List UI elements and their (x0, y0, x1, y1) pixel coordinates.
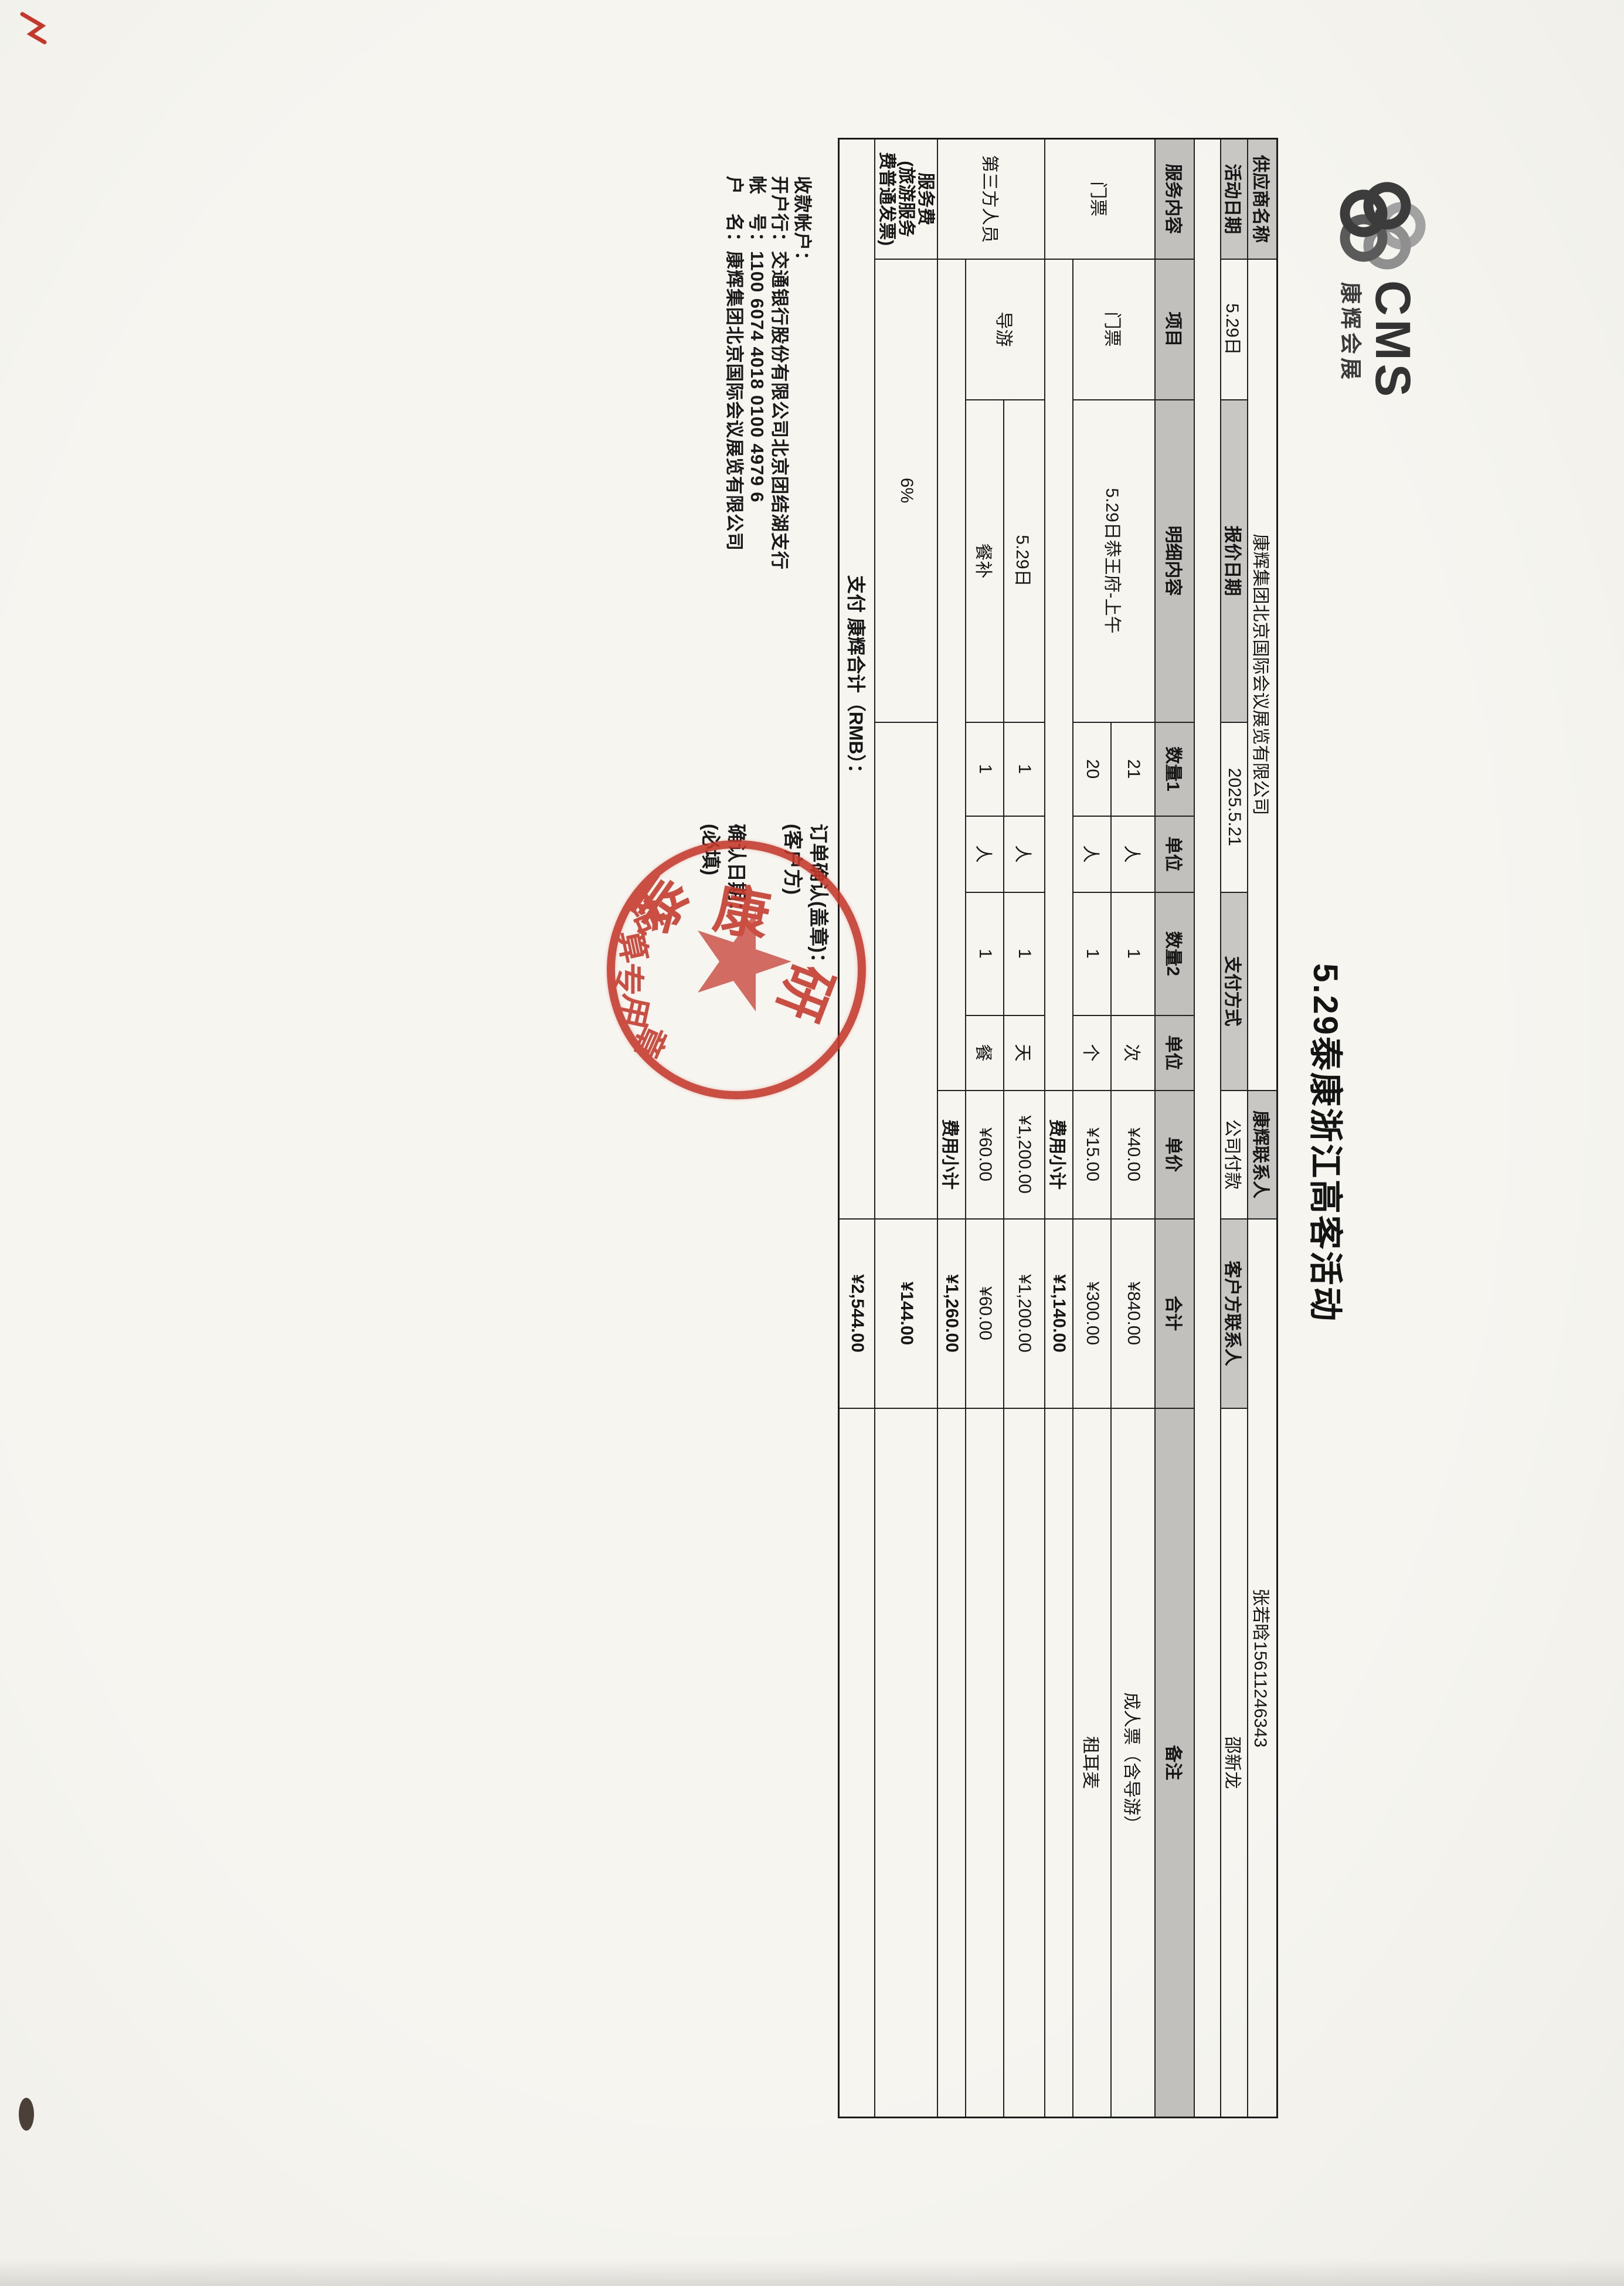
client-contact-value-cell: 邵新龙 (1221, 1408, 1248, 2118)
subtotal-amount-cell: ¥1,140.00 (1045, 1219, 1073, 1408)
subtotal-label-cell: 费用小计 (1045, 1091, 1073, 1219)
col-header: 合计 (1156, 1219, 1195, 1408)
amount-cell: ¥60.00 (966, 1219, 1004, 1408)
scanned-page: CMS 康辉会展 5.29泰康浙江高客活动 供应商名称 康辉集团北京国际会议展览… (0, 0, 1624, 2286)
col-header: 备注 (1156, 1408, 1195, 2118)
col-header: 单位 (1156, 1015, 1195, 1091)
detail-cell: 餐补 (966, 400, 1004, 722)
unit2-cell: 天 (1004, 1015, 1045, 1091)
spacer-row (1195, 139, 1221, 2118)
empty-note-cell (938, 1408, 966, 2118)
note-cell: 租耳麦 (1073, 1408, 1112, 2118)
col-header: 明细内容 (1156, 400, 1195, 722)
qty1-cell: 1 (1004, 722, 1045, 816)
item-cell: 导游 (966, 259, 1045, 400)
table-row-grand-total: 支付 康辉合计（RMB）： ¥2,544.00 (839, 139, 875, 2118)
subtotal-label-cell: 费用小计 (938, 1091, 966, 1219)
qty1-cell: 20 (1073, 722, 1112, 816)
service-fee-line3: 费普通发票) (878, 152, 897, 246)
stamp-bottom-char: 专 (606, 963, 654, 996)
scan-smudge (19, 2098, 34, 2131)
unit2-cell: 餐 (966, 1015, 1004, 1091)
table-row-subtotal2: 费用小计 ¥1,260.00 (938, 139, 966, 2118)
bank-account-block: 收款帐户： 开户行：交通银行股份有限公司北京团结湖支行 帐 号：1100 607… (723, 176, 813, 570)
service-fee-rate-cell: 6% (875, 259, 938, 722)
qty1-cell: 1 (966, 722, 1004, 816)
qty1-cell: 21 (1112, 722, 1156, 816)
pay-method-label-cell: 支付方式 (1221, 892, 1248, 1091)
col-header: 单价 (1156, 1091, 1195, 1219)
doc-title: 5.29泰康浙江高客活动 (1304, 0, 1353, 2286)
quote-date-value-cell: 2025.5.21 (1221, 722, 1248, 892)
group-cell: 门票 (1045, 139, 1156, 259)
table-row-guide: 第三方人员 导游 5.29日 1 人 1 天 ¥1,200.00 ¥1,200.… (1004, 139, 1045, 2118)
event-date-label-cell: 活动日期 (1221, 139, 1248, 259)
table-row-ticket1: 门票 门票 5.29日恭王府-上午 21 人 1 次 ¥40.00 ¥840.0… (1112, 139, 1156, 2118)
red-pen-mark (19, 11, 48, 46)
qty2-cell: 1 (1004, 892, 1045, 1015)
table-row-service-fee: 服务费 (旅游服务 费普通发票) 6% ¥144.00 (875, 139, 938, 2118)
info-row-supplier: 供应商名称 康辉集团北京国际会议展览有限公司 康辉联系人 张若晗15611246… (1248, 139, 1278, 2118)
spacer-cell (1195, 139, 1221, 2118)
event-date-value-cell: 5.29日 (1221, 259, 1248, 400)
detail-cell: 5.29日 (1004, 400, 1045, 722)
unit1-cell: 人 (1004, 816, 1045, 892)
empty-note-cell (966, 1408, 1004, 2118)
empty-note-cell (1004, 1408, 1045, 2118)
unit2-cell: 个 (1073, 1015, 1112, 1091)
detail-cell: 5.29日恭王府-上午 (1073, 400, 1156, 722)
subtotal-spacer-cell (1045, 259, 1073, 1091)
table-header-row: 服务内容 项目 明细内容 数量1 单位 数量2 单位 单价 合计 备注 (1156, 139, 1195, 2118)
bank-line-branch: 开户行：交通银行股份有限公司北京团结湖支行 (768, 176, 791, 570)
empty-note-cell (875, 1408, 938, 2118)
empty-note-cell (839, 1408, 875, 2118)
supplier-value-cell: 康辉集团北京国际会议展览有限公司 (1248, 259, 1278, 1091)
bank-line-name: 户 名：康辉集团北京国际会议展览有限公司 (723, 176, 746, 570)
empty-note-cell (1045, 1408, 1073, 2118)
document: CMS 康辉会展 5.29泰康浙江高客活动 供应商名称 康辉集团北京国际会议展览… (0, 0, 1624, 2286)
service-fee-spacer-cell (875, 722, 938, 1219)
supplier-label-cell: 供应商名称 (1248, 139, 1278, 259)
item-cell: 门票 (1073, 259, 1156, 400)
qty2-cell: 1 (966, 892, 1004, 1015)
note-cell: 成人票（含导游） (1112, 1408, 1156, 2118)
bank-line-account: 收款帐户： (791, 176, 814, 570)
service-fee-amount-cell: ¥144.00 (875, 1219, 938, 1408)
unit1-cell: 人 (1073, 816, 1112, 892)
group-cell: 第三方人员 (938, 139, 1045, 259)
service-fee-line2: (旅游服务 (897, 161, 916, 237)
unit1-cell: 人 (966, 816, 1004, 892)
unit1-cell: 人 (1112, 816, 1156, 892)
col-header: 服务内容 (1156, 139, 1195, 259)
qty2-cell: 1 (1073, 892, 1112, 1015)
price-cell: ¥1,200.00 (1004, 1091, 1045, 1219)
bank-line-number: 帐 号：1100 6074 4018 0100 4979 6 (746, 176, 769, 570)
grand-total-amount-cell: ¥2,544.00 (839, 1219, 875, 1408)
amount-cell: ¥1,200.00 (1004, 1219, 1045, 1408)
pay-method-value-cell: 公司付款 (1221, 1091, 1248, 1219)
amount-cell: ¥300.00 (1073, 1219, 1112, 1408)
amount-cell: ¥840.00 (1112, 1219, 1156, 1408)
kh-contact-value-cell: 张若晗15611246343 (1248, 1219, 1278, 2118)
col-header: 单位 (1156, 816, 1195, 892)
table-row-meal: 餐补 1 人 1 餐 ¥60.00 ¥60.00 (966, 139, 1004, 2118)
service-fee-line1: 服务费 (916, 172, 936, 225)
subtotal-spacer-cell (938, 259, 966, 1091)
quotation-table: 供应商名称 康辉集团北京国际会议展览有限公司 康辉联系人 张若晗15611246… (838, 138, 1278, 2118)
client-contact-label-cell: 客户方联系人 (1221, 1219, 1248, 1408)
price-cell: ¥60.00 (966, 1091, 1004, 1219)
col-header: 项目 (1156, 259, 1195, 400)
quote-date-label-cell: 报价日期 (1221, 400, 1248, 722)
kh-contact-label-cell: 康辉联系人 (1248, 1091, 1278, 1219)
qty2-cell: 1 (1112, 892, 1156, 1015)
service-fee-label-cell: 服务费 (旅游服务 费普通发票) (875, 139, 938, 259)
brand-cms-text: CMS (1364, 280, 1421, 400)
col-header: 数量1 (1156, 722, 1195, 816)
grand-total-label-cell: 支付 康辉合计（RMB）： (839, 139, 875, 1219)
price-cell: ¥40.00 (1112, 1091, 1156, 1219)
col-header: 数量2 (1156, 892, 1195, 1015)
subtotal-amount-cell: ¥1,260.00 (938, 1219, 966, 1408)
unit2-cell: 次 (1112, 1015, 1156, 1091)
table-row-subtotal1: 费用小计 ¥1,140.00 (1045, 139, 1073, 2118)
price-cell: ¥15.00 (1073, 1091, 1112, 1219)
info-row-dates: 活动日期 5.29日 报价日期 2025.5.21 支付方式 公司付款 客户方联… (1221, 139, 1248, 2118)
